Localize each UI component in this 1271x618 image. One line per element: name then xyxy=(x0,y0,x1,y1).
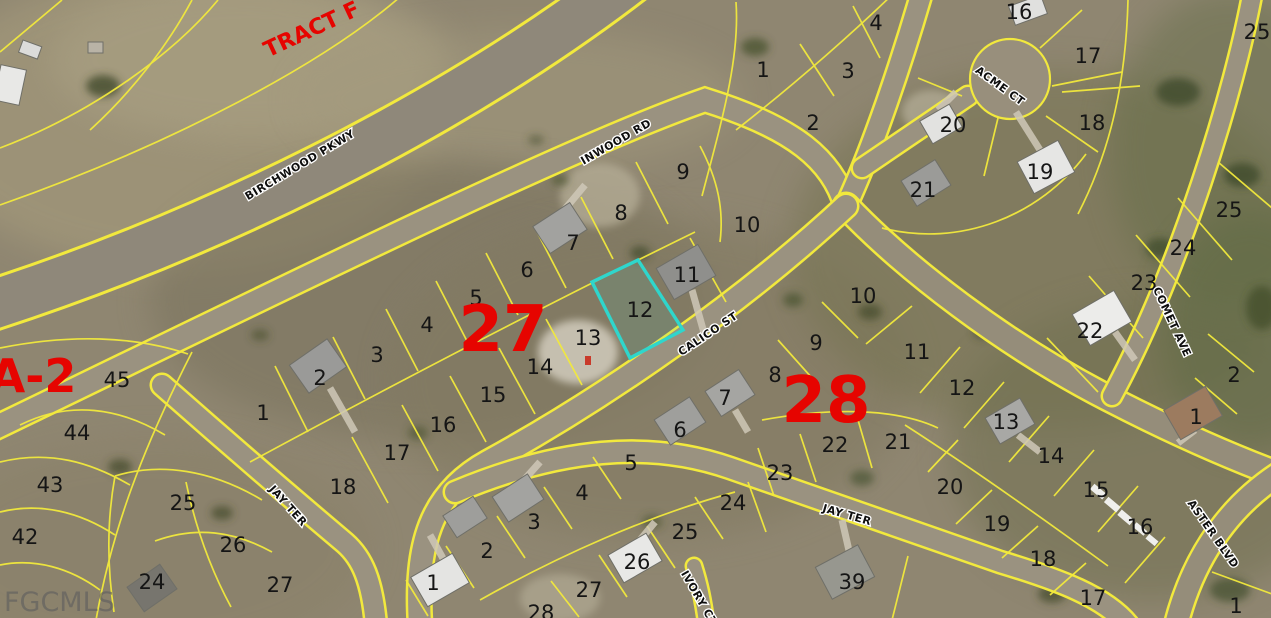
lot-number-label: 20 xyxy=(937,475,964,499)
lot-number-label: 25 xyxy=(1244,20,1271,44)
lot-number-label: 16 xyxy=(430,413,457,437)
lot-number-label: 7 xyxy=(566,231,579,255)
lot-number-label: 16 xyxy=(1006,0,1033,24)
lot-number-label: 20 xyxy=(940,113,967,137)
lot-number-label: 4 xyxy=(869,11,882,35)
lot-number-label: 4 xyxy=(420,313,433,337)
lot-number-label: 2 xyxy=(313,366,326,390)
lot-number-label: 26 xyxy=(624,550,651,574)
lot-number-label: 18 xyxy=(1079,111,1106,135)
plat-map-screenshot: 1234161718192021252524232221987654321101… xyxy=(0,0,1271,618)
lot-number-label: 10 xyxy=(734,213,761,237)
lot-number-label: 15 xyxy=(1083,478,1110,502)
lot-number-label: 21 xyxy=(910,178,937,202)
lot-number-label: 7 xyxy=(718,386,731,410)
lot-number-label: 21 xyxy=(885,430,912,454)
lot-number-label: 11 xyxy=(674,263,701,287)
lot-number-label: 5 xyxy=(624,451,637,475)
lot-number-label: 39 xyxy=(839,570,866,594)
lot-number-label: 17 xyxy=(1080,586,1107,610)
lot-number-label: 27 xyxy=(267,573,294,597)
lot-number-label: 25 xyxy=(170,491,197,515)
construction-equipment xyxy=(585,356,591,365)
lot-number-label: 2 xyxy=(806,111,819,135)
lot-number-label: 25 xyxy=(672,520,699,544)
lot-number-label: 1 xyxy=(1189,405,1202,429)
lot-number-label: 2 xyxy=(1227,363,1240,387)
lot-number-label: 17 xyxy=(1075,44,1102,68)
lot-number-label: 6 xyxy=(673,418,686,442)
lot-number-label: 17 xyxy=(384,441,411,465)
lot-number-label: 19 xyxy=(984,512,1011,536)
mls-watermark: FGCMLS xyxy=(4,587,115,618)
red-block-label: A-2 xyxy=(0,349,76,403)
lot-number-label: 4 xyxy=(575,481,588,505)
lot-number-label: 42 xyxy=(12,525,39,549)
lot-number-label: 27 xyxy=(576,578,603,602)
lot-number-label: 8 xyxy=(614,201,627,225)
lot-number-label: 15 xyxy=(480,383,507,407)
lot-number-label: 13 xyxy=(575,326,602,350)
red-block-label: 28 xyxy=(781,364,870,438)
lot-number-label: 28 xyxy=(528,601,555,618)
lot-number-label: 43 xyxy=(37,473,64,497)
lot-number-label: 8 xyxy=(768,363,781,387)
plat-map: 1234161718192021252524232221987654321101… xyxy=(0,0,1271,618)
lot-number-label: 3 xyxy=(527,510,540,534)
lot-number-label: 19 xyxy=(1027,160,1054,184)
lot-number-label: 25 xyxy=(1216,198,1243,222)
red-block-label: 27 xyxy=(458,293,547,367)
lot-number-label: 1 xyxy=(256,401,269,425)
lot-number-label: 9 xyxy=(809,331,822,355)
lot-number-label: 1 xyxy=(1229,594,1242,618)
lot-number-label: 24 xyxy=(1170,236,1197,260)
lot-number-label: 12 xyxy=(627,298,654,322)
lot-number-label: 2 xyxy=(480,539,493,563)
lot-number-label: 6 xyxy=(520,258,533,282)
lot-number-label: 10 xyxy=(850,284,877,308)
lot-number-label: 3 xyxy=(370,343,383,367)
lot-number-label: 18 xyxy=(330,475,357,499)
lot-number-label: 9 xyxy=(676,160,689,184)
lot-number-label: 26 xyxy=(220,533,247,557)
lot-number-label: 12 xyxy=(949,376,976,400)
lot-number-label: 18 xyxy=(1030,547,1057,571)
lot-number-label: 1 xyxy=(756,58,769,82)
lot-number-label: 22 xyxy=(1077,319,1104,343)
lot-number-label: 3 xyxy=(841,59,854,83)
lot-number-label: 24 xyxy=(720,491,747,515)
lot-number-label: 45 xyxy=(104,368,131,392)
lot-number-label: 24 xyxy=(139,570,166,594)
lot-number-label: 16 xyxy=(1127,515,1154,539)
lot-number-label: 23 xyxy=(767,461,794,485)
lot-number-label: 11 xyxy=(904,340,931,364)
lot-number-label: 44 xyxy=(64,421,91,445)
lot-number-label: 14 xyxy=(1038,444,1065,468)
lot-number-label: 13 xyxy=(993,410,1020,434)
lot-number-label: 1 xyxy=(426,571,439,595)
